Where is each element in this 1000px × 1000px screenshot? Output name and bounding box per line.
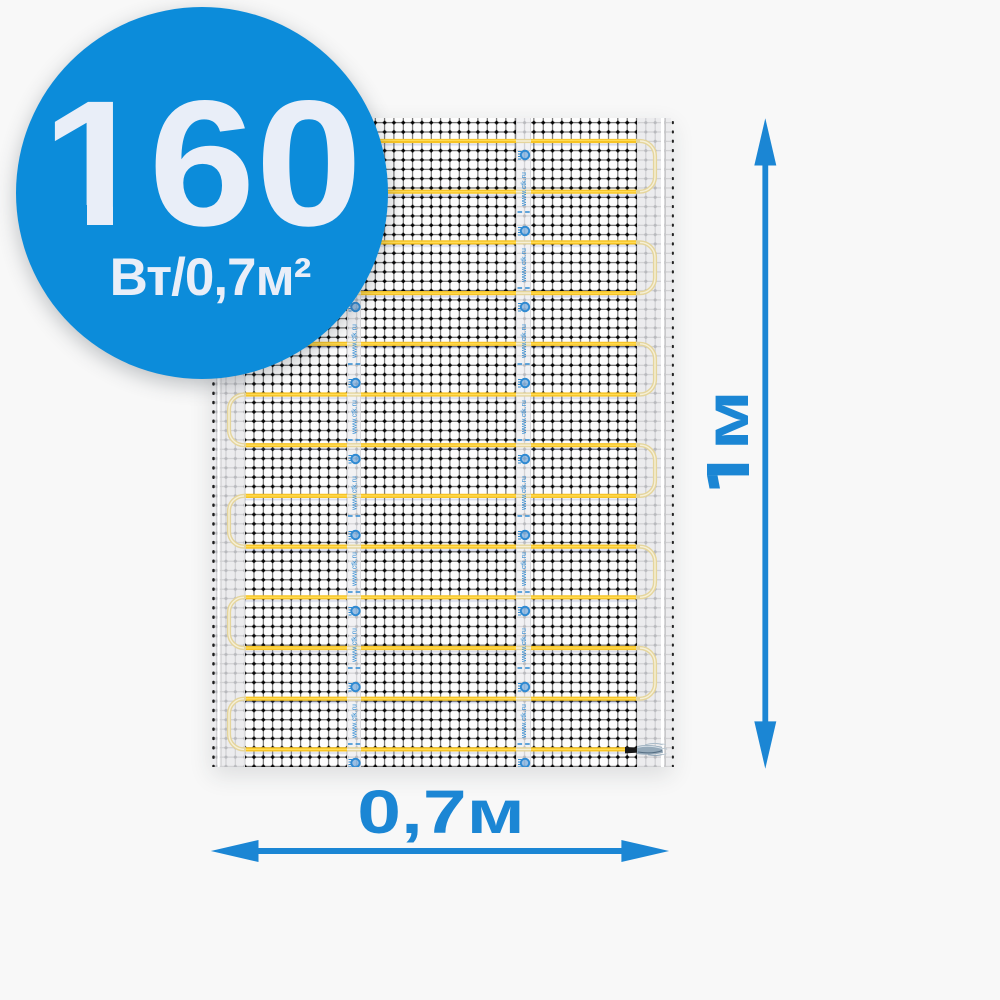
svg-text:www.ctk.ru: www.ctk.ru: [352, 552, 359, 587]
svg-text:www.ctk.ru: www.ctk.ru: [521, 324, 528, 359]
svg-text:www.ctk.ru: www.ctk.ru: [521, 248, 528, 283]
svg-text:www.ctk.ru: www.ctk.ru: [352, 704, 359, 739]
svg-text:www.ctk.ru: www.ctk.ru: [352, 628, 359, 663]
svg-text:www.ctk.ru: www.ctk.ru: [521, 628, 528, 663]
svg-text:www.ctk.ru: www.ctk.ru: [521, 552, 528, 587]
svg-text:www.ctk.ru: www.ctk.ru: [352, 324, 359, 359]
svg-text:www.ctk.ru: www.ctk.ru: [352, 476, 359, 511]
svg-text:www.ctk.ru: www.ctk.ru: [521, 172, 528, 207]
svg-text:www.ctk.ru: www.ctk.ru: [352, 400, 359, 435]
svg-text:www.ctk.ru: www.ctk.ru: [521, 476, 528, 511]
svg-text:www.ctk.ru: www.ctk.ru: [521, 400, 528, 435]
svg-text:www.ctk.ru: www.ctk.ru: [521, 704, 528, 739]
